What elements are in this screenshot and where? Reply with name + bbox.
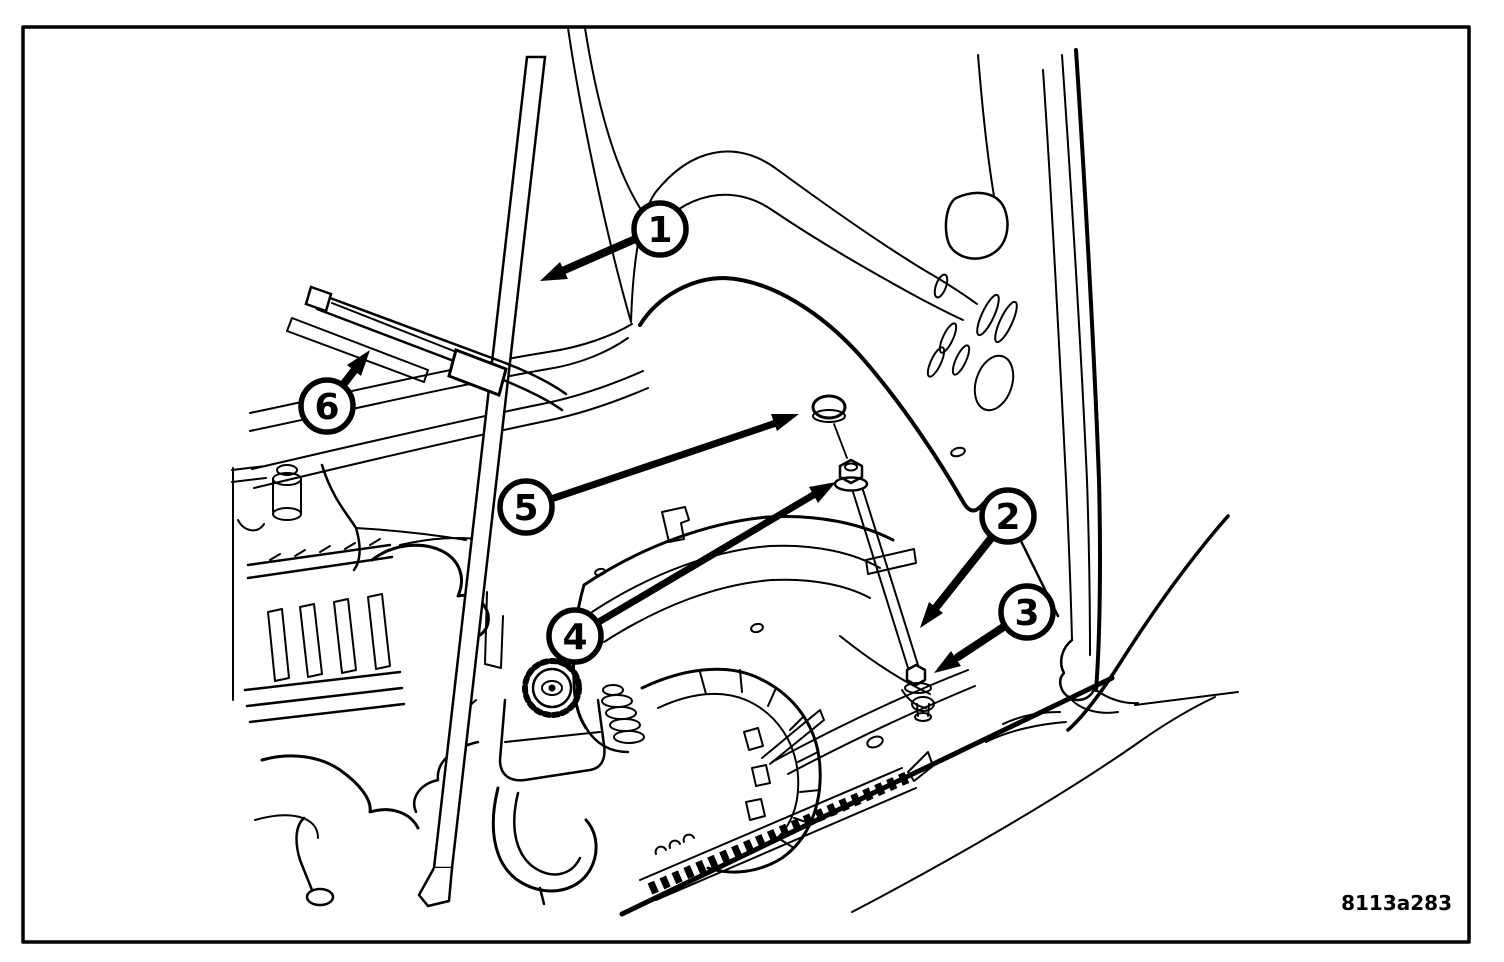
callout-3: 3	[934, 586, 1053, 673]
fender-area	[622, 516, 1228, 914]
ball-stud-nut	[835, 460, 867, 491]
bellows-hose	[602, 685, 644, 743]
callout-4-number: 4	[562, 617, 587, 658]
hood-vent-slots	[925, 273, 1021, 415]
gas-strut-rod	[853, 490, 918, 668]
figure-page: 1 6 5 4 2	[0, 0, 1504, 962]
callout-2-number: 2	[995, 497, 1020, 538]
sensor-canister	[273, 465, 301, 520]
wheel-arch	[852, 697, 1215, 912]
callout-5-number: 5	[513, 488, 538, 529]
callout-1-arrowhead	[540, 262, 568, 281]
hood-opening-curve	[640, 278, 984, 511]
cowl-serrated-strip	[640, 768, 916, 900]
callout-5-arrowhead	[771, 414, 799, 431]
intake-runners	[268, 594, 390, 681]
hood-inner-panel	[568, 28, 1021, 511]
callout-5: 5	[500, 414, 799, 533]
reservoir-cap	[525, 661, 579, 715]
engine-compartment-diagram: 1 6 5 4 2	[0, 0, 1504, 962]
ball-stud-cap	[813, 396, 845, 422]
hose-end	[307, 889, 333, 905]
callout-3-number: 3	[1014, 593, 1039, 634]
callout-6-number: 6	[314, 387, 339, 428]
hood-latch-reinforcement	[946, 193, 1008, 259]
fender-arc	[1068, 516, 1228, 730]
callout-1-number: 1	[647, 210, 672, 251]
figure-id-label: 8113a283	[1341, 891, 1452, 915]
callout-4: 4	[549, 482, 836, 662]
brake-master-area	[414, 661, 975, 904]
callout-1: 1	[540, 203, 686, 281]
callout-4-arrowhead	[809, 482, 836, 503]
callout-6: 6	[301, 350, 370, 432]
